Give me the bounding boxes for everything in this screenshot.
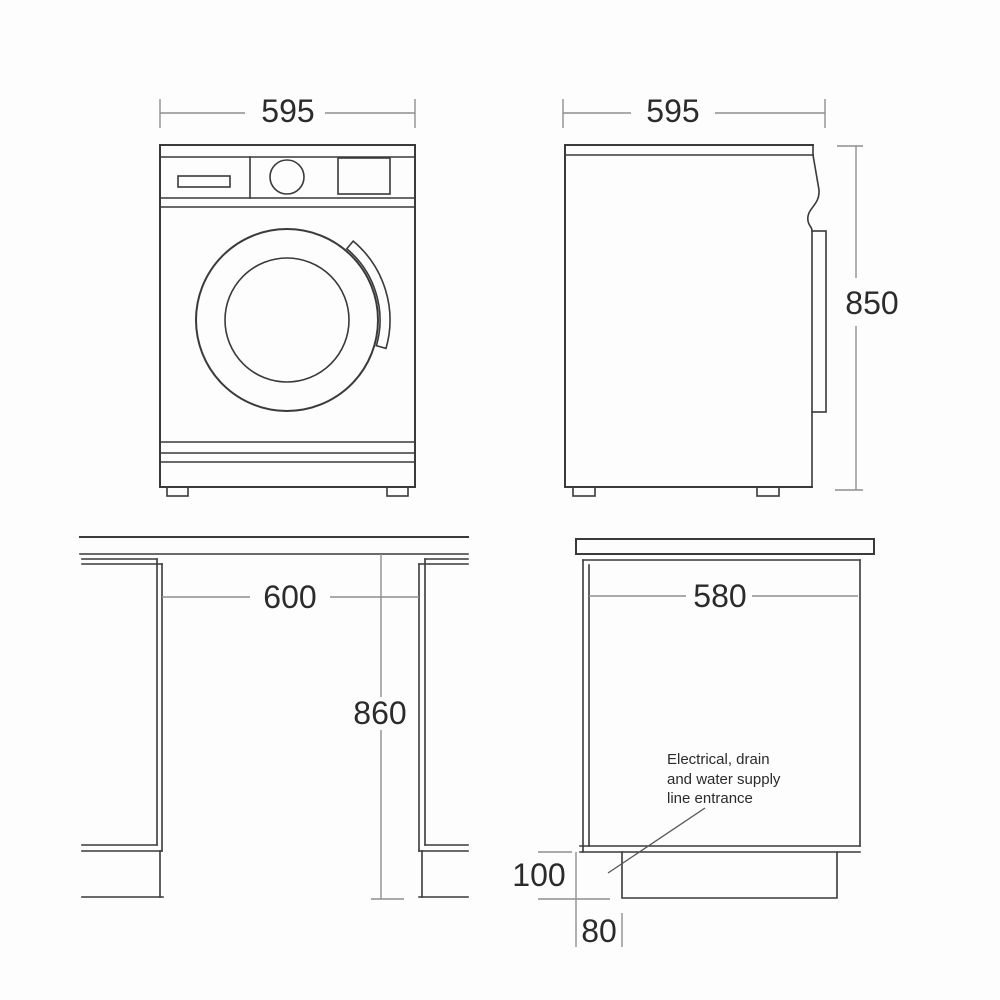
right-foot: [757, 487, 779, 496]
control-knob: [270, 160, 304, 194]
machine-body-outline: [160, 145, 415, 487]
annotation-text-line2: and water supply: [667, 771, 781, 788]
plinth-height-label: 100: [512, 857, 565, 893]
countertop-section: [576, 539, 874, 554]
drawing-svg: 595 595 850: [0, 0, 1000, 1000]
installation-dimensions-drawing: 595 595 850: [0, 0, 1000, 1000]
side-depth-label: 595: [646, 93, 699, 129]
plinth-outline: [622, 852, 837, 898]
display-window: [338, 158, 390, 194]
side-view: 595 850: [563, 93, 899, 496]
detergent-drawer: [178, 176, 230, 187]
door-glass: [225, 258, 349, 382]
niche-depth-label: 580: [693, 578, 746, 614]
left-foot: [167, 487, 188, 496]
door-outer-ring: [196, 229, 378, 411]
right-foot: [387, 487, 408, 496]
front-view: 595: [160, 93, 415, 496]
plinth-recess-label: 80: [581, 913, 617, 949]
front-width-label: 595: [261, 93, 314, 129]
annotation-text-line3: line entrance: [667, 790, 753, 807]
annotation-text-line1: Electrical, drain: [667, 751, 770, 768]
annotation-leader-line: [608, 808, 705, 873]
front-profile-notch: [808, 155, 819, 231]
niche-width-label: 600: [263, 579, 316, 615]
left-foot: [573, 487, 595, 496]
niche-height-label: 860: [353, 695, 406, 731]
niche-side-view: 580 100 80 Electrical, drain and water s…: [512, 539, 874, 949]
side-height-label: 850: [845, 285, 898, 321]
door-edge: [812, 231, 826, 412]
niche-front-view: 600 860: [80, 537, 468, 899]
